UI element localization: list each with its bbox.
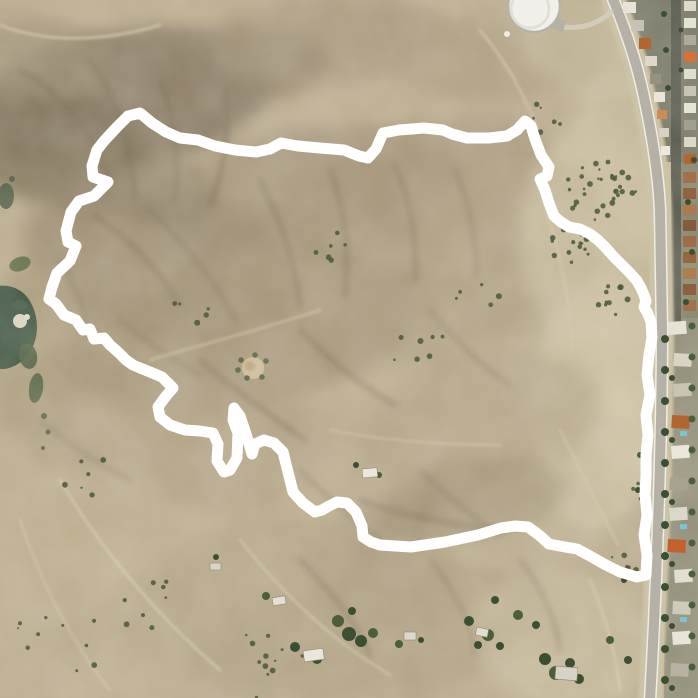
scrub-dot xyxy=(151,580,156,585)
house-roof xyxy=(672,631,691,645)
tree xyxy=(565,658,575,668)
scrub-dot xyxy=(172,301,177,306)
swimming-pool xyxy=(680,431,687,436)
house-roof xyxy=(683,236,696,247)
scrub-dot xyxy=(86,472,90,476)
scrub-dot xyxy=(599,178,602,181)
scrub-dot xyxy=(594,218,597,221)
scrub-dot xyxy=(570,261,573,264)
scrub-dot xyxy=(496,293,502,299)
house-roof xyxy=(659,128,669,137)
tree xyxy=(689,664,696,671)
tree xyxy=(689,540,696,547)
house-roof xyxy=(404,632,416,640)
tree xyxy=(539,653,551,665)
scrub-dot xyxy=(578,245,583,250)
house-roof xyxy=(650,74,661,84)
house-roof xyxy=(661,146,670,155)
scrub-dot xyxy=(123,598,127,602)
tree xyxy=(689,323,696,330)
aerial-map-canvas[interactable] xyxy=(0,0,698,698)
scrub-dot xyxy=(257,660,261,664)
scrub-dot xyxy=(568,188,571,191)
house-roof xyxy=(362,468,378,478)
tree xyxy=(353,462,359,468)
scrub-dot xyxy=(89,492,94,497)
house-roof xyxy=(210,563,221,570)
scrub-dot xyxy=(427,353,433,359)
tree xyxy=(683,299,689,305)
scrub-dot xyxy=(552,253,557,258)
scrub-dot xyxy=(85,644,89,648)
scrub-dot xyxy=(393,358,396,361)
scrub-dot xyxy=(625,296,631,302)
scrub-dot xyxy=(611,556,613,558)
scrub-dot xyxy=(250,641,256,647)
scrub-dot xyxy=(399,335,404,340)
tree xyxy=(661,645,669,653)
tree xyxy=(689,354,696,361)
tree xyxy=(332,615,344,627)
tree xyxy=(689,602,696,609)
scrub-dot xyxy=(606,160,611,165)
scrub-dot xyxy=(488,303,493,308)
tree xyxy=(661,521,669,529)
tree xyxy=(679,68,684,73)
scrub-dot xyxy=(26,646,30,650)
tree xyxy=(689,385,696,392)
tree xyxy=(624,656,632,664)
tree xyxy=(661,428,669,436)
house-roof xyxy=(631,20,644,31)
scrub-dot xyxy=(604,290,609,295)
tree xyxy=(496,642,504,650)
tree xyxy=(661,583,669,591)
scrub-dot xyxy=(581,242,584,245)
scrub-dot xyxy=(597,178,599,180)
tree xyxy=(348,607,356,615)
scrub-dot xyxy=(458,290,462,294)
scrub-dot xyxy=(618,185,622,189)
scrub-dot xyxy=(532,117,535,120)
tree xyxy=(661,11,667,17)
swimming-pool xyxy=(680,617,687,622)
tree xyxy=(669,623,675,629)
tree xyxy=(661,335,669,343)
scrub-dot xyxy=(431,335,435,339)
scrub-dot xyxy=(335,231,340,236)
house-roof xyxy=(684,103,696,113)
tree xyxy=(689,249,695,255)
tree xyxy=(661,397,669,405)
house-roof xyxy=(683,284,696,295)
tree xyxy=(513,610,523,620)
scrub-dot xyxy=(636,482,639,485)
scrub-dot xyxy=(606,284,610,288)
tree xyxy=(661,676,669,684)
scrub-dot xyxy=(263,653,269,659)
scrub-dot xyxy=(124,621,130,627)
scrub-dot xyxy=(266,673,269,676)
scrub-dot xyxy=(274,660,276,662)
house-roof xyxy=(667,539,686,553)
scrub-dot xyxy=(609,200,615,206)
tree xyxy=(691,157,697,163)
house-roof xyxy=(654,92,665,102)
scrub-dot xyxy=(600,203,605,208)
scrub-dot xyxy=(245,634,248,637)
tree xyxy=(663,47,669,53)
house-roof xyxy=(672,601,691,615)
house-roof xyxy=(684,120,696,130)
scrub-dot xyxy=(567,250,572,255)
scrub-dot xyxy=(583,192,587,196)
scrub-dot xyxy=(18,621,22,625)
scrub-dot xyxy=(270,668,276,674)
house-roof xyxy=(683,172,696,183)
scrub-dot xyxy=(620,189,625,194)
tree xyxy=(669,685,675,691)
scrub-dot xyxy=(534,102,539,107)
scrub-dot xyxy=(91,662,97,668)
scrub-dot xyxy=(612,197,616,201)
tree xyxy=(342,627,356,641)
map-viewport xyxy=(0,0,698,698)
scrub-dot xyxy=(610,175,615,180)
house-roof xyxy=(555,666,578,681)
house-roof xyxy=(683,204,696,215)
scrub-dot xyxy=(618,284,624,290)
scrub-dot xyxy=(79,459,83,463)
house-roof xyxy=(668,321,687,335)
house-roof xyxy=(684,35,696,45)
tree xyxy=(661,366,669,374)
house-roof xyxy=(669,507,688,521)
small-structure xyxy=(504,31,510,37)
scrub-dot xyxy=(566,177,570,181)
scrub-dot xyxy=(614,313,617,316)
tree xyxy=(395,640,403,648)
scrub-dot xyxy=(551,239,554,242)
tree xyxy=(661,459,669,467)
tree xyxy=(262,592,270,600)
scrub-dot xyxy=(263,663,269,669)
tree xyxy=(474,641,482,649)
scrub-dot xyxy=(621,553,627,559)
tree xyxy=(661,614,669,622)
scrub-dot xyxy=(552,119,557,124)
scrub-dot xyxy=(631,487,635,491)
scrub-dot xyxy=(587,181,593,187)
house-roof xyxy=(670,663,689,677)
house-roof xyxy=(683,220,696,231)
house-roof xyxy=(684,18,696,28)
scrub-dot xyxy=(329,244,333,248)
tree xyxy=(689,571,696,578)
tree xyxy=(213,554,219,560)
scrub-dot xyxy=(207,307,210,310)
tree xyxy=(669,499,675,505)
house-roof xyxy=(639,38,651,49)
scrub-dot xyxy=(583,248,586,251)
house-roof xyxy=(671,445,690,459)
scrub-dot xyxy=(571,240,575,244)
scrub-dot xyxy=(596,302,601,307)
house-roof xyxy=(683,268,696,279)
tree xyxy=(355,635,367,647)
scrub-dot xyxy=(455,297,458,300)
scrub-dot xyxy=(61,624,64,627)
tree xyxy=(689,416,696,423)
scrub-dot xyxy=(62,482,68,488)
scrub-dot xyxy=(613,189,619,195)
house-roof xyxy=(303,648,324,662)
tree xyxy=(665,85,671,91)
house-roof xyxy=(684,69,696,79)
scrub-dot xyxy=(579,174,584,179)
house-roof xyxy=(683,188,696,199)
scrub-dot xyxy=(598,168,600,170)
scrub-dot xyxy=(581,166,584,169)
scrub-dot xyxy=(558,122,562,126)
scrub-dot xyxy=(164,580,168,584)
terrain-noise-fine xyxy=(0,0,698,698)
scrub-dot xyxy=(92,619,96,623)
house-roof xyxy=(645,56,657,66)
scrub-dot xyxy=(80,487,82,489)
tree xyxy=(606,636,614,644)
scrub-dot xyxy=(605,213,610,218)
scrub-dot xyxy=(161,585,166,590)
scrub-dot xyxy=(418,338,424,344)
scrub-dot xyxy=(36,632,40,636)
scrub-dot xyxy=(587,253,590,256)
house-roof xyxy=(684,137,696,147)
scrub-dot xyxy=(149,625,154,630)
scrub-dot xyxy=(164,596,167,599)
tree xyxy=(368,628,378,638)
scrub-dot xyxy=(607,300,612,305)
scrub-dot xyxy=(583,188,586,191)
scrub-dot xyxy=(573,204,576,207)
tree xyxy=(661,552,669,560)
tree xyxy=(669,437,675,443)
scrub-dot xyxy=(266,634,270,638)
house-roof xyxy=(669,477,688,491)
scrub-dot xyxy=(343,243,346,246)
scrub-dot xyxy=(194,320,200,326)
house-roof xyxy=(657,110,667,119)
scrub-dot xyxy=(44,616,47,619)
scrub-dot xyxy=(141,613,145,617)
tree xyxy=(661,490,669,498)
tree xyxy=(669,375,675,381)
scrub-dot xyxy=(595,209,600,214)
tree xyxy=(532,621,540,629)
scrub-dot xyxy=(178,303,181,306)
scrub-dot xyxy=(17,627,19,629)
scrub-dot xyxy=(630,190,636,196)
scrub-dot xyxy=(314,250,319,255)
tree xyxy=(290,642,300,652)
scrub-dot xyxy=(326,254,332,260)
scrub-dot xyxy=(619,170,625,176)
tree xyxy=(689,478,696,485)
tree xyxy=(418,637,424,643)
swimming-pool xyxy=(680,524,687,529)
tree xyxy=(491,596,499,604)
house-roof xyxy=(684,86,696,96)
scrub-dot xyxy=(75,669,78,672)
tree xyxy=(679,28,684,33)
tree xyxy=(669,561,675,567)
scrub-dot xyxy=(593,161,599,167)
tree xyxy=(685,199,691,205)
scrub-dot xyxy=(100,457,106,463)
scrub-dot xyxy=(604,303,607,306)
scrub-dot xyxy=(204,312,209,317)
scrub-dot xyxy=(441,335,445,339)
tree xyxy=(464,616,474,626)
house-roof xyxy=(684,52,696,62)
tree xyxy=(689,447,696,454)
tree xyxy=(689,633,696,640)
tree xyxy=(689,509,696,516)
scrub-dot xyxy=(625,175,631,181)
scrub-dot xyxy=(281,648,284,651)
house-roof xyxy=(671,415,690,429)
scrub-dot xyxy=(414,357,419,362)
house-roof xyxy=(623,2,636,13)
house-roof xyxy=(684,1,696,11)
scrub-dot xyxy=(540,107,542,109)
scrub-dot xyxy=(480,283,483,286)
